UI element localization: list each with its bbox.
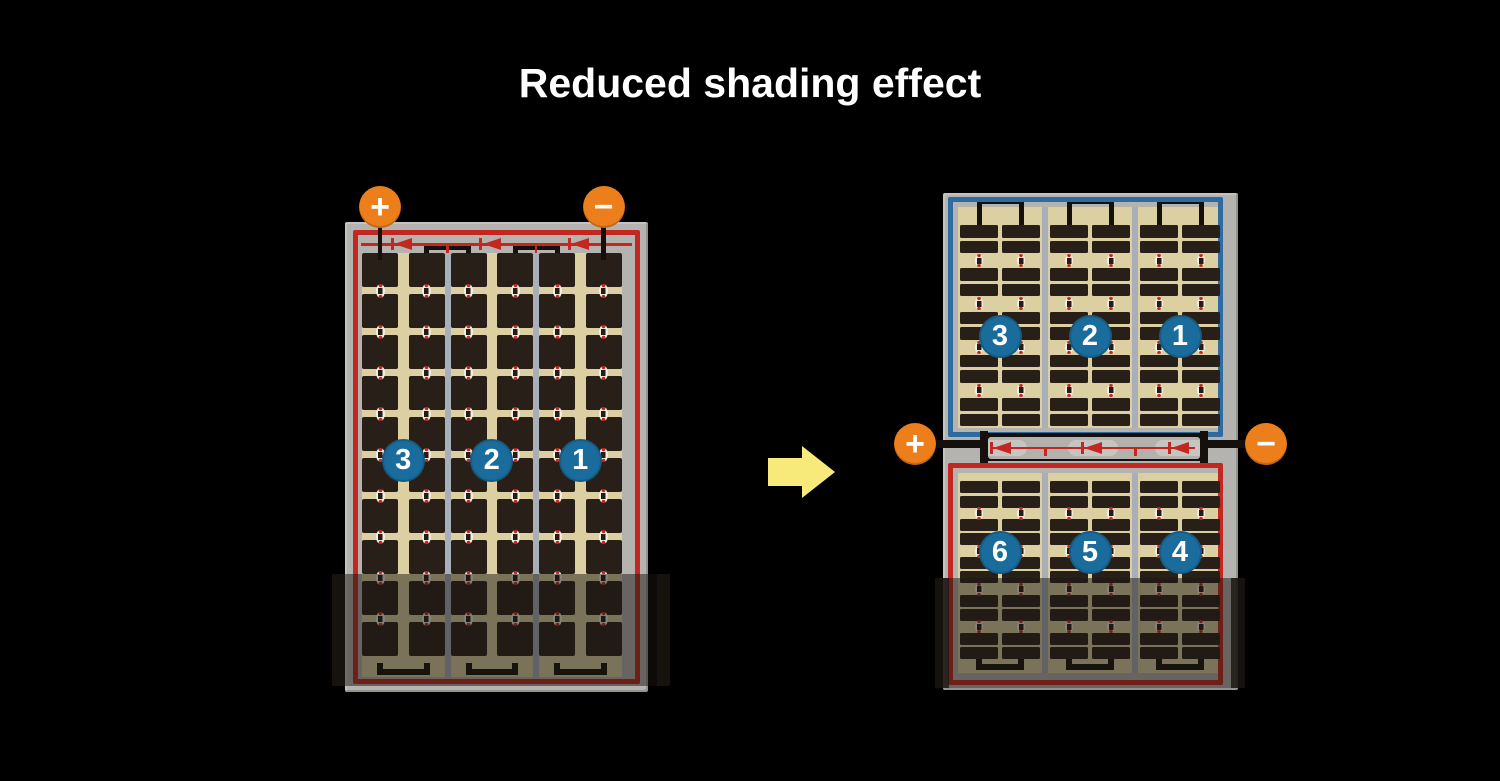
cell-connector-dot [599, 530, 608, 544]
half-cell [1050, 225, 1088, 238]
half-cell [1050, 519, 1088, 531]
cell [497, 294, 533, 328]
half-cell [960, 414, 998, 427]
half-cell [1092, 398, 1130, 411]
half-cell [1050, 481, 1088, 493]
cell-connector-dot [599, 366, 608, 380]
cell-connector-dot [1017, 254, 1025, 267]
half-cell [960, 496, 998, 508]
cell-connector-dot [599, 325, 608, 339]
diode-wire-tick [1044, 447, 1047, 456]
half-cell [1092, 496, 1130, 508]
cell-connector-dot [599, 407, 608, 421]
half-cell [1002, 414, 1040, 427]
cell-connector-dot [553, 530, 562, 544]
half-cell [1182, 519, 1220, 531]
diode-wire-tick [535, 244, 538, 253]
cell-connector-dot [511, 489, 520, 503]
half-cell [1092, 370, 1130, 383]
half-cell [960, 268, 998, 281]
diode-wire-tick [1134, 447, 1137, 456]
cell-connector-dot [511, 366, 520, 380]
cell-connector-dot [464, 366, 473, 380]
cell [409, 253, 445, 287]
cell [362, 376, 398, 410]
cell [586, 540, 622, 574]
half-cell [1092, 284, 1130, 297]
half-cell [1140, 241, 1178, 254]
cell-connector-dot [464, 284, 473, 298]
cell [497, 540, 533, 574]
cell-connector-dot [511, 530, 520, 544]
cell [539, 499, 575, 533]
cell-connector-dot [1155, 507, 1163, 520]
half-cell [1182, 268, 1220, 281]
half-cell [1092, 414, 1130, 427]
cell [539, 540, 575, 574]
half-cell [1140, 225, 1178, 238]
diagram-title: Reduced shading effect [0, 60, 1500, 107]
diode-wire-tick [446, 244, 449, 253]
half-cell [1092, 519, 1130, 531]
cell-connector-dot [464, 407, 473, 421]
cell-connector-dot [599, 284, 608, 298]
bypass-diode-bar [391, 238, 394, 250]
cell-connector-dot [1197, 507, 1205, 520]
cell-connector-dot [422, 530, 431, 544]
left-module-panel: 321+− [345, 222, 648, 692]
bypass-diode-icon [483, 238, 501, 250]
cell-connector-dot [422, 489, 431, 503]
arrow-head-icon [802, 446, 835, 498]
half-cell [1092, 241, 1130, 254]
half-cell [960, 398, 998, 411]
cell [451, 376, 487, 410]
cell-connector-dot [376, 489, 385, 503]
cell-connector-dot [422, 366, 431, 380]
bypass-diode-bar [479, 238, 482, 250]
cell-connector-dot [1107, 507, 1115, 520]
cell [497, 376, 533, 410]
cell-connector-dot [553, 489, 562, 503]
cell-connector-dot [422, 407, 431, 421]
half-cell [1092, 481, 1130, 493]
cell-connector-dot [1065, 254, 1073, 267]
cell-connector-dot [1197, 384, 1205, 397]
half-cell [1182, 225, 1220, 238]
half-cell [1002, 225, 1040, 238]
cell-connector-dot [1017, 384, 1025, 397]
junction-end-bar [1200, 431, 1208, 463]
minus-terminal: − [1245, 423, 1287, 465]
cell [451, 294, 487, 328]
cell [586, 294, 622, 328]
cell-connector-dot [511, 284, 520, 298]
half-cell [1182, 496, 1220, 508]
cell-connector-dot [553, 284, 562, 298]
half-cell [1002, 481, 1040, 493]
cell-connector-dot [422, 284, 431, 298]
half-cell [1050, 284, 1088, 297]
cell-connector-dot [422, 325, 431, 339]
half-cell [1002, 241, 1040, 254]
cell-connector-dot [376, 366, 385, 380]
cell [539, 376, 575, 410]
half-cell [1002, 519, 1040, 531]
half-cell [1140, 519, 1178, 531]
string-number-badge: 4 [1159, 531, 1202, 574]
bypass-diode-icon [993, 442, 1011, 454]
half-cell [1092, 225, 1130, 238]
string-number-badge: 6 [979, 531, 1022, 574]
cell [409, 335, 445, 369]
half-cell [1140, 414, 1178, 427]
cell [586, 335, 622, 369]
cell-connector-dot [1107, 254, 1115, 267]
cell [362, 294, 398, 328]
diagram-canvas: Reduced shading effect 321+− 321654+− [0, 0, 1500, 781]
cell-connector-dot [1017, 507, 1025, 520]
string-number-badge: 5 [1069, 531, 1112, 574]
half-cell [1140, 398, 1178, 411]
half-cell [1002, 370, 1040, 383]
half-cell [960, 519, 998, 531]
bypass-diode-bar [1081, 442, 1084, 454]
cell-connector-dot [376, 530, 385, 544]
half-cell [1140, 370, 1178, 383]
bypass-diode-icon [1084, 442, 1102, 454]
minus-terminal: − [583, 186, 625, 228]
plus-terminal: + [359, 186, 401, 228]
string-number-badge: 1 [559, 439, 602, 482]
cell-connector-dot [1197, 254, 1205, 267]
shade-overlay [935, 578, 1245, 688]
cell-connector-dot [975, 254, 983, 267]
half-cell [1140, 268, 1178, 281]
plus-terminal: + [894, 423, 936, 465]
shade-overlay-edge [1231, 578, 1245, 688]
bypass-diode-bar [990, 442, 993, 454]
half-cell [1002, 284, 1040, 297]
cell [451, 335, 487, 369]
bypass-diode-icon [571, 238, 589, 250]
cell-connector-dot [1065, 507, 1073, 520]
cell [539, 253, 575, 287]
cell [409, 499, 445, 533]
half-cell [1002, 496, 1040, 508]
string-number-badge: 3 [979, 315, 1022, 358]
cell-connector-dot [464, 489, 473, 503]
half-cell [1182, 370, 1220, 383]
half-cell [960, 481, 998, 493]
half-cell [1050, 414, 1088, 427]
shade-overlay-edge [657, 574, 670, 686]
half-cell [1182, 414, 1220, 427]
right-module-panel: 321654+− [943, 193, 1238, 690]
cell [451, 253, 487, 287]
half-cell [1182, 398, 1220, 411]
cell [362, 499, 398, 533]
cell [586, 376, 622, 410]
half-cell [1002, 268, 1040, 281]
half-cell [1050, 268, 1088, 281]
cell-connector-dot [511, 407, 520, 421]
shade-overlay [332, 574, 670, 686]
bypass-diode-bar [568, 238, 571, 250]
string-number-badge: 2 [470, 439, 513, 482]
cell-connector-dot [1155, 254, 1163, 267]
cell [497, 335, 533, 369]
string-number-badge: 1 [1159, 315, 1202, 358]
bypass-diode-strip [988, 437, 1200, 459]
cell-connector-dot [511, 325, 520, 339]
cell-connector-dot [1155, 384, 1163, 397]
half-cell [1182, 481, 1220, 493]
half-cell [1092, 268, 1130, 281]
bypass-diode-icon [1171, 442, 1189, 454]
cell-connector-dot [1107, 384, 1115, 397]
cell [409, 540, 445, 574]
cell [362, 540, 398, 574]
half-cell [960, 241, 998, 254]
cell [497, 499, 533, 533]
cell [539, 294, 575, 328]
cell [362, 335, 398, 369]
cell [586, 499, 622, 533]
cell-connector-dot [975, 507, 983, 520]
half-cell [1002, 398, 1040, 411]
junction-end-bar [980, 431, 988, 463]
half-cell [1140, 481, 1178, 493]
shade-overlay-edge [935, 578, 949, 688]
half-cell [1182, 241, 1220, 254]
cell-connector-dot [1065, 384, 1073, 397]
half-cell [1140, 284, 1178, 297]
cell-connector-dot [376, 284, 385, 298]
cell-connector-dot [553, 325, 562, 339]
cell [451, 499, 487, 533]
cell [409, 376, 445, 410]
half-cell [960, 370, 998, 383]
cell-connector-dot [464, 530, 473, 544]
cell [409, 294, 445, 328]
arrow-body [768, 458, 802, 486]
cell-connector-dot [553, 366, 562, 380]
half-cell [1140, 496, 1178, 508]
cell-connector-dot [376, 407, 385, 421]
cell-connector-dot [599, 489, 608, 503]
string-number-badge: 3 [382, 439, 425, 482]
bypass-diode-icon [394, 238, 412, 250]
cell-connector-dot [975, 384, 983, 397]
cell [539, 335, 575, 369]
half-cell [1182, 284, 1220, 297]
cell [451, 540, 487, 574]
half-cell [960, 225, 998, 238]
half-cell [1050, 370, 1088, 383]
half-cell [960, 284, 998, 297]
cell-connector-dot [376, 325, 385, 339]
half-cell [1050, 241, 1088, 254]
half-cell [1050, 496, 1088, 508]
shade-overlay-edge [332, 574, 345, 686]
cell-connector-dot [464, 325, 473, 339]
cell [497, 253, 533, 287]
transform-arrow [768, 446, 835, 498]
bypass-diode-bar [1168, 442, 1171, 454]
half-cell [1050, 398, 1088, 411]
cell-connector-dot [553, 407, 562, 421]
string-number-badge: 2 [1069, 315, 1112, 358]
